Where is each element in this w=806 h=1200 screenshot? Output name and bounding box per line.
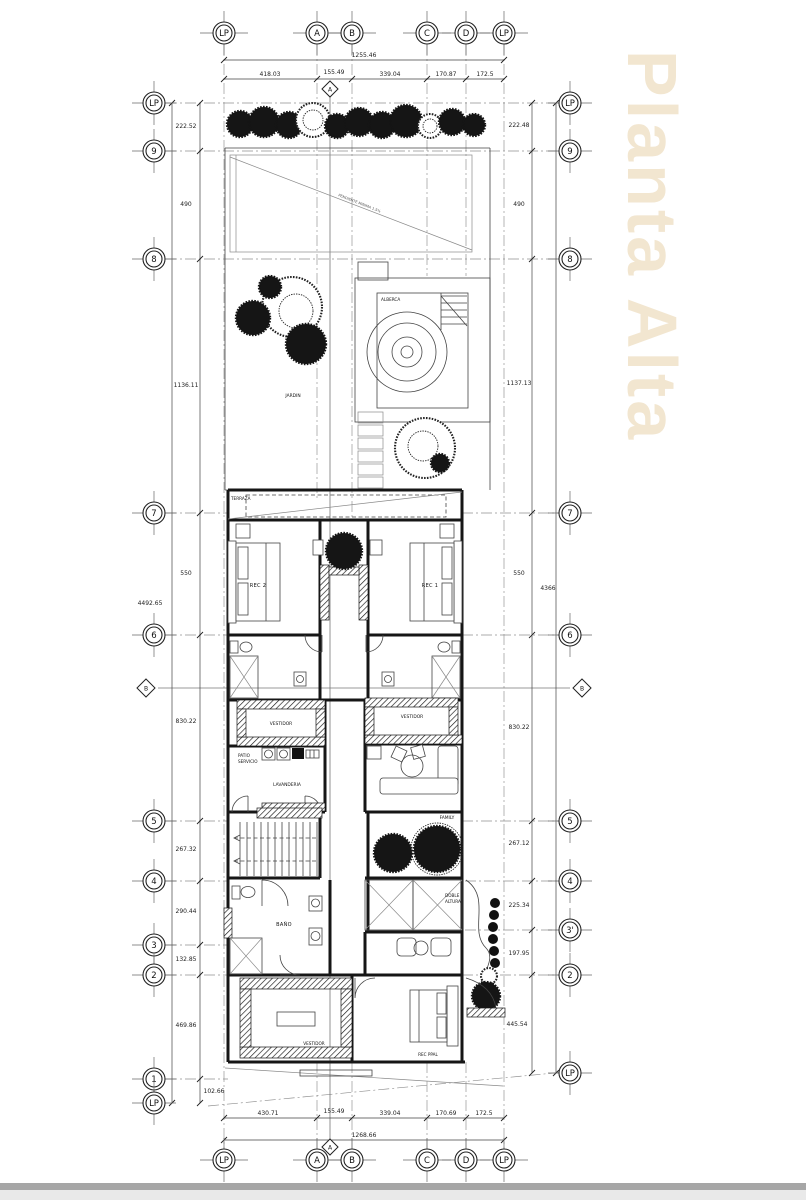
axis-bubbles-top: LP A B C D LP bbox=[200, 11, 528, 55]
svg-text:2: 2 bbox=[151, 971, 156, 981]
axis-bubble-right-5: 5 bbox=[548, 799, 592, 843]
svg-text:1136.11: 1136.11 bbox=[174, 382, 199, 389]
svg-text:418.03: 418.03 bbox=[260, 71, 281, 78]
svg-text:155.49: 155.49 bbox=[324, 69, 345, 76]
room-label-lavanderia: LAVANDERIA bbox=[273, 782, 301, 788]
svg-text:C: C bbox=[424, 1156, 430, 1166]
svg-text:7: 7 bbox=[151, 509, 156, 519]
axis-bubble-right-7: 7 bbox=[548, 491, 592, 535]
svg-text:172.5: 172.5 bbox=[476, 71, 493, 78]
axis-bubble-right-8: 8 bbox=[548, 237, 592, 281]
axis-bubble-right-9: 9 bbox=[548, 129, 592, 173]
footer-light-strip bbox=[0, 1190, 806, 1200]
room-label-doble-2: ALTURA bbox=[445, 899, 461, 904]
svg-text:550: 550 bbox=[513, 570, 525, 577]
svg-text:550: 550 bbox=[180, 570, 192, 577]
svg-text:6: 6 bbox=[567, 631, 572, 641]
room-label-jardin: JARDIN bbox=[284, 393, 300, 399]
svg-text:267.32: 267.32 bbox=[176, 846, 197, 853]
side-garden-strip bbox=[466, 880, 505, 1017]
bedroom-rec1: REC 1 bbox=[410, 524, 462, 623]
svg-text:339.04: 339.04 bbox=[380, 71, 401, 78]
vestidor-principal: VESTIDOR bbox=[240, 978, 352, 1058]
room-label-family: FAMILY bbox=[440, 815, 455, 821]
svg-text:430.71: 430.71 bbox=[258, 1110, 279, 1117]
axis-bubble-top-lp1: LP bbox=[200, 11, 248, 55]
svg-text:5: 5 bbox=[151, 817, 156, 827]
room-label-alberca: ALBERCA bbox=[381, 297, 400, 302]
svg-text:339.04: 339.04 bbox=[380, 1110, 401, 1117]
svg-text:445.54: 445.54 bbox=[507, 1021, 528, 1028]
svg-text:5: 5 bbox=[567, 817, 572, 827]
svg-text:LP: LP bbox=[219, 1156, 229, 1166]
hedge-trees bbox=[227, 103, 485, 138]
svg-text:4: 4 bbox=[151, 877, 156, 887]
svg-text:290.44: 290.44 bbox=[176, 908, 197, 915]
svg-text:8: 8 bbox=[567, 255, 572, 265]
room-label-rec-ppal: REC PPAL bbox=[418, 1052, 438, 1057]
dim-bottom-overall: 1268.66 bbox=[352, 1132, 377, 1139]
section-marker-b-left: B bbox=[137, 679, 155, 697]
terraza: TERRAZA bbox=[228, 492, 462, 519]
svg-text:132.85: 132.85 bbox=[176, 956, 197, 963]
core-tree bbox=[326, 533, 362, 569]
svg-text:A: A bbox=[314, 29, 320, 39]
svg-text:D: D bbox=[463, 1156, 470, 1166]
svg-text:225.34: 225.34 bbox=[509, 902, 530, 909]
axis-bubble-left-5: 5 bbox=[132, 799, 176, 843]
axis-bubble-top-lp2: LP bbox=[480, 11, 528, 55]
pool: ALBERCA bbox=[355, 262, 490, 422]
svg-text:9: 9 bbox=[567, 147, 572, 157]
svg-text:490: 490 bbox=[180, 201, 192, 208]
svg-text:C: C bbox=[424, 29, 430, 39]
axis-bubble-bottom-lp1: LP bbox=[200, 1138, 248, 1182]
svg-text:469.86: 469.86 bbox=[176, 1022, 197, 1029]
svg-text:B: B bbox=[144, 686, 148, 693]
lavanderia: LAVANDERIA PATIO SERVICIO bbox=[232, 748, 325, 812]
footer-bar bbox=[0, 1183, 806, 1190]
garden-area: PENDIENTE MINIMA 1.5% JARDIN bbox=[225, 103, 490, 490]
svg-text:830.22: 830.22 bbox=[509, 724, 530, 731]
garden-trees bbox=[236, 276, 326, 364]
svg-text:LP: LP bbox=[565, 1069, 575, 1079]
svg-text:B: B bbox=[349, 1156, 355, 1166]
svg-text:LP: LP bbox=[149, 1099, 159, 1109]
svg-text:2: 2 bbox=[567, 971, 572, 981]
bano: BAÑO bbox=[224, 880, 322, 975]
axis-bubble-right-4: 4 bbox=[548, 859, 592, 903]
axis-bubble-left-6: 6 bbox=[132, 613, 176, 657]
floor-plan-drawing: 1255.46 418.03 155.49 339.04 170.87 172.… bbox=[0, 0, 806, 1200]
svg-text:222.52: 222.52 bbox=[176, 123, 197, 130]
room-label-doble-1: DOBLE bbox=[445, 893, 460, 898]
roof-note: PENDIENTE MINIMA 1.5% bbox=[338, 193, 382, 214]
svg-text:3: 3 bbox=[151, 941, 156, 951]
room-label-vestidor-left: VESTIDOR bbox=[270, 721, 292, 727]
svg-text:LP: LP bbox=[219, 29, 229, 39]
stairs bbox=[234, 808, 322, 876]
svg-text:3': 3' bbox=[566, 926, 574, 936]
axis-bubble-left-9: 9 bbox=[132, 129, 176, 173]
axis-bubbles-bottom: LP A B C D LP bbox=[200, 1138, 528, 1182]
room-label-rec2: REC 2 bbox=[250, 583, 266, 589]
family-room: FAMILY bbox=[367, 745, 458, 821]
svg-text:197.95: 197.95 bbox=[509, 950, 530, 957]
svg-text:490: 490 bbox=[513, 201, 525, 208]
axis-bubble-right-lp-bottom: LP bbox=[548, 1051, 592, 1095]
svg-text:B: B bbox=[580, 686, 584, 693]
axis-bubble-top-b: B bbox=[328, 11, 376, 55]
svg-text:155.49: 155.49 bbox=[324, 1108, 345, 1115]
axis-bubble-left-lp-top: LP bbox=[132, 81, 176, 125]
dim-left-overall: 4492.65 bbox=[138, 600, 163, 607]
svg-text:172.5: 172.5 bbox=[475, 1110, 492, 1117]
svg-text:1137.13: 1137.13 bbox=[507, 380, 532, 387]
svg-text:6: 6 bbox=[151, 631, 156, 641]
svg-text:9: 9 bbox=[151, 147, 156, 157]
sitting-area bbox=[397, 938, 451, 956]
room-label-rec1: REC 1 bbox=[422, 583, 438, 589]
svg-text:4: 4 bbox=[567, 877, 572, 887]
room-label-vestidor-ppal: VESTIDOR bbox=[303, 1041, 324, 1046]
vestidor-right: VESTIDOR bbox=[365, 698, 462, 744]
svg-text:D: D bbox=[463, 29, 470, 39]
room-label-patio-2: SERVICIO bbox=[238, 759, 258, 764]
axis-bubble-right-3p: 3' bbox=[548, 908, 592, 952]
planter bbox=[374, 823, 463, 875]
bathroom-left bbox=[230, 641, 306, 698]
axis-bubble-right-2: 2 bbox=[548, 953, 592, 997]
axis-bubble-left-2: 2 bbox=[132, 953, 176, 997]
dim-right-overall: 4366 bbox=[540, 585, 555, 592]
svg-text:7: 7 bbox=[567, 509, 572, 519]
section-marker-a-top: A bbox=[322, 81, 338, 97]
axis-bubble-right-lp-top: LP bbox=[548, 81, 592, 125]
svg-text:222.48: 222.48 bbox=[509, 122, 530, 129]
stepping-stones bbox=[358, 412, 383, 488]
room-label-patio-1: PATIO bbox=[238, 753, 251, 758]
svg-text:170.87: 170.87 bbox=[436, 71, 457, 78]
bedroom-rec2: REC 2 bbox=[228, 524, 280, 623]
room-label-vestidor-right: VESTIDOR bbox=[401, 714, 423, 720]
svg-text:LP: LP bbox=[499, 1156, 509, 1166]
svg-text:B: B bbox=[349, 29, 355, 39]
axis-bubble-left-4: 4 bbox=[132, 859, 176, 903]
doble-altura: DOBLE ALTURA bbox=[365, 880, 462, 930]
svg-text:102.66: 102.66 bbox=[204, 1088, 225, 1095]
axis-bubble-bottom-lp2: LP bbox=[480, 1138, 528, 1182]
svg-text:LP: LP bbox=[149, 99, 159, 109]
room-label-bano: BAÑO bbox=[276, 921, 292, 928]
axis-bubble-right-6: 6 bbox=[548, 613, 592, 657]
room-label-terraza: TERRAZA bbox=[230, 496, 251, 501]
patio-tree bbox=[395, 418, 455, 478]
section-marker-b-right: B bbox=[573, 679, 591, 697]
vestidor-left: VESTIDOR bbox=[237, 700, 325, 746]
svg-text:A: A bbox=[314, 1156, 320, 1166]
svg-text:170.69: 170.69 bbox=[436, 1110, 457, 1117]
svg-text:267.12: 267.12 bbox=[509, 840, 530, 847]
floor-plan-page: Planta Alta 1255.46 418.03 1 bbox=[0, 0, 806, 1200]
svg-text:8: 8 bbox=[151, 255, 156, 265]
svg-text:830.22: 830.22 bbox=[176, 718, 197, 725]
svg-text:LP: LP bbox=[565, 99, 575, 109]
dim-top-overall: 1255.46 bbox=[352, 52, 377, 59]
axis-bubble-left-7: 7 bbox=[132, 491, 176, 535]
svg-text:LP: LP bbox=[499, 29, 509, 39]
axis-bubble-left-lp-bottom: LP bbox=[132, 1081, 176, 1125]
bathroom-right bbox=[382, 641, 460, 698]
axis-bubble-left-8: 8 bbox=[132, 237, 176, 281]
